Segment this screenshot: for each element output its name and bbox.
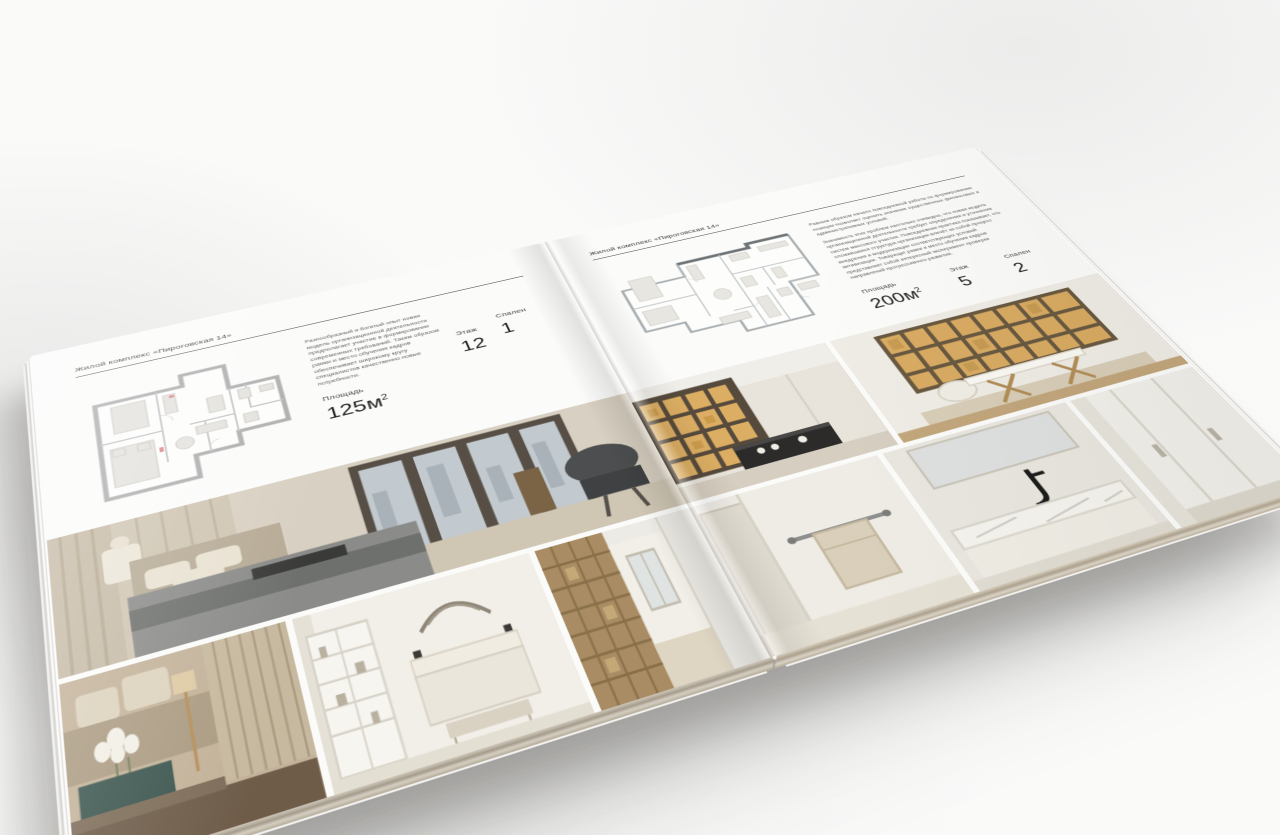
- floor-label: Этаж: [947, 263, 970, 273]
- floor-value: 5: [954, 271, 985, 289]
- spec-floor-right: Этаж 5: [947, 263, 984, 289]
- area-unit-sup: 2: [380, 391, 390, 401]
- photo-backdrop: Жилой комплекс «Пироговская 14»: [0, 0, 1280, 835]
- bedrooms-value: 1: [498, 315, 536, 337]
- floor-value: 12: [458, 334, 489, 355]
- spec-bedrooms-right: Спален 2: [1002, 248, 1048, 276]
- brochure-spread: Жилой комплекс «Пироговская 14»: [31, 147, 1280, 835]
- spec-area-right: Площадь 200м2: [860, 276, 929, 311]
- bedrooms-value: 2: [1009, 255, 1048, 275]
- perspective-wrapper: Жилой комплекс «Пироговская 14»: [0, 0, 1280, 835]
